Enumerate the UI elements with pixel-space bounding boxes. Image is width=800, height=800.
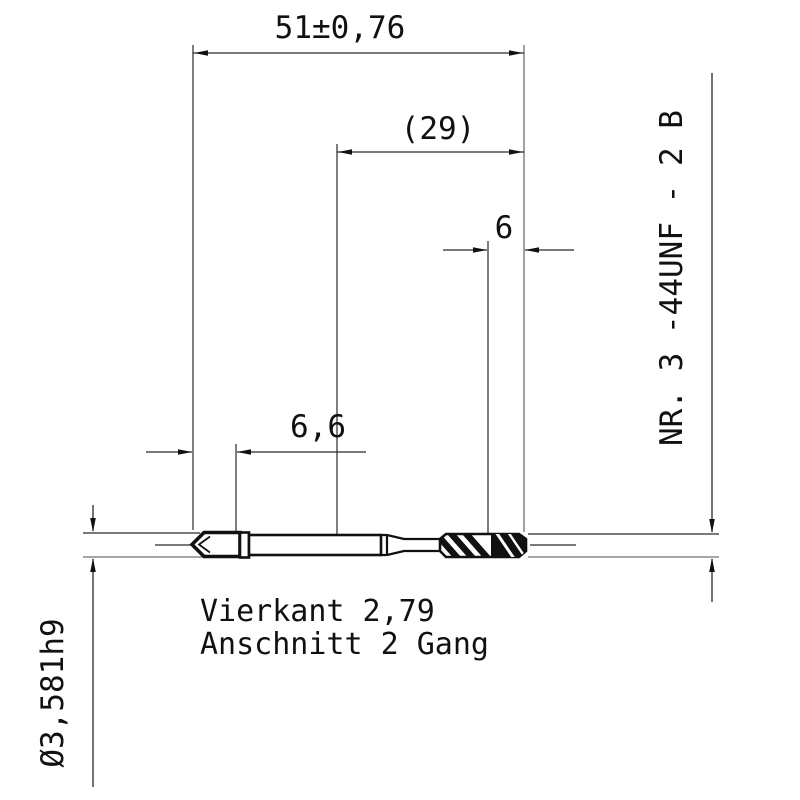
arrowhead-left (473, 247, 487, 253)
dim-ref-length: (29) (337, 111, 524, 155)
dim-chamfer-length: 6 (443, 210, 574, 253)
arrowhead-left (194, 50, 208, 56)
arrowhead-up (90, 558, 96, 572)
arrowhead-left (338, 149, 352, 155)
arrowhead-down (709, 519, 715, 533)
thread-callout-label: NR. 3 -44UNF - 2 B (654, 110, 690, 446)
arrowhead-left (178, 449, 192, 455)
drawing-canvas: 51±0,76 (29) 6 6,6 Ø3,581h9 (0, 0, 800, 800)
arrowhead-right (237, 449, 251, 455)
ref-length-label: (29) (401, 111, 476, 147)
arrowhead-right (525, 247, 539, 253)
chamfer-length-label: 6 (495, 210, 514, 246)
dim-thread-callout: NR. 3 -44UNF - 2 B (528, 73, 719, 602)
dim-overall-length: 51±0,76 (193, 10, 524, 56)
arrowhead-down (90, 518, 96, 532)
technical-drawing: 51±0,76 (29) 6 6,6 Ø3,581h9 (0, 0, 800, 800)
shank-diameter-label: Ø3,581h9 (35, 618, 71, 767)
dim-shank-diameter: Ø3,581h9 (35, 505, 204, 787)
dim-square-length: 6,6 (146, 409, 366, 455)
note-square-size: Vierkant 2,79 (200, 594, 435, 629)
arrowhead-right (509, 50, 523, 56)
arrowhead-up (709, 558, 715, 572)
note-chamfer-lead: Anschnitt 2 Gang (200, 627, 489, 662)
tool-tap (192, 529, 529, 563)
arrowhead-right (509, 149, 523, 155)
notes: Vierkant 2,79 Anschnitt 2 Gang (200, 594, 489, 662)
square-length-label: 6,6 (290, 409, 346, 445)
neck (387, 535, 443, 555)
tip-chamfer (491, 534, 526, 557)
overall-length-label: 51±0,76 (275, 10, 406, 46)
collar (240, 533, 249, 558)
shank (249, 535, 381, 555)
